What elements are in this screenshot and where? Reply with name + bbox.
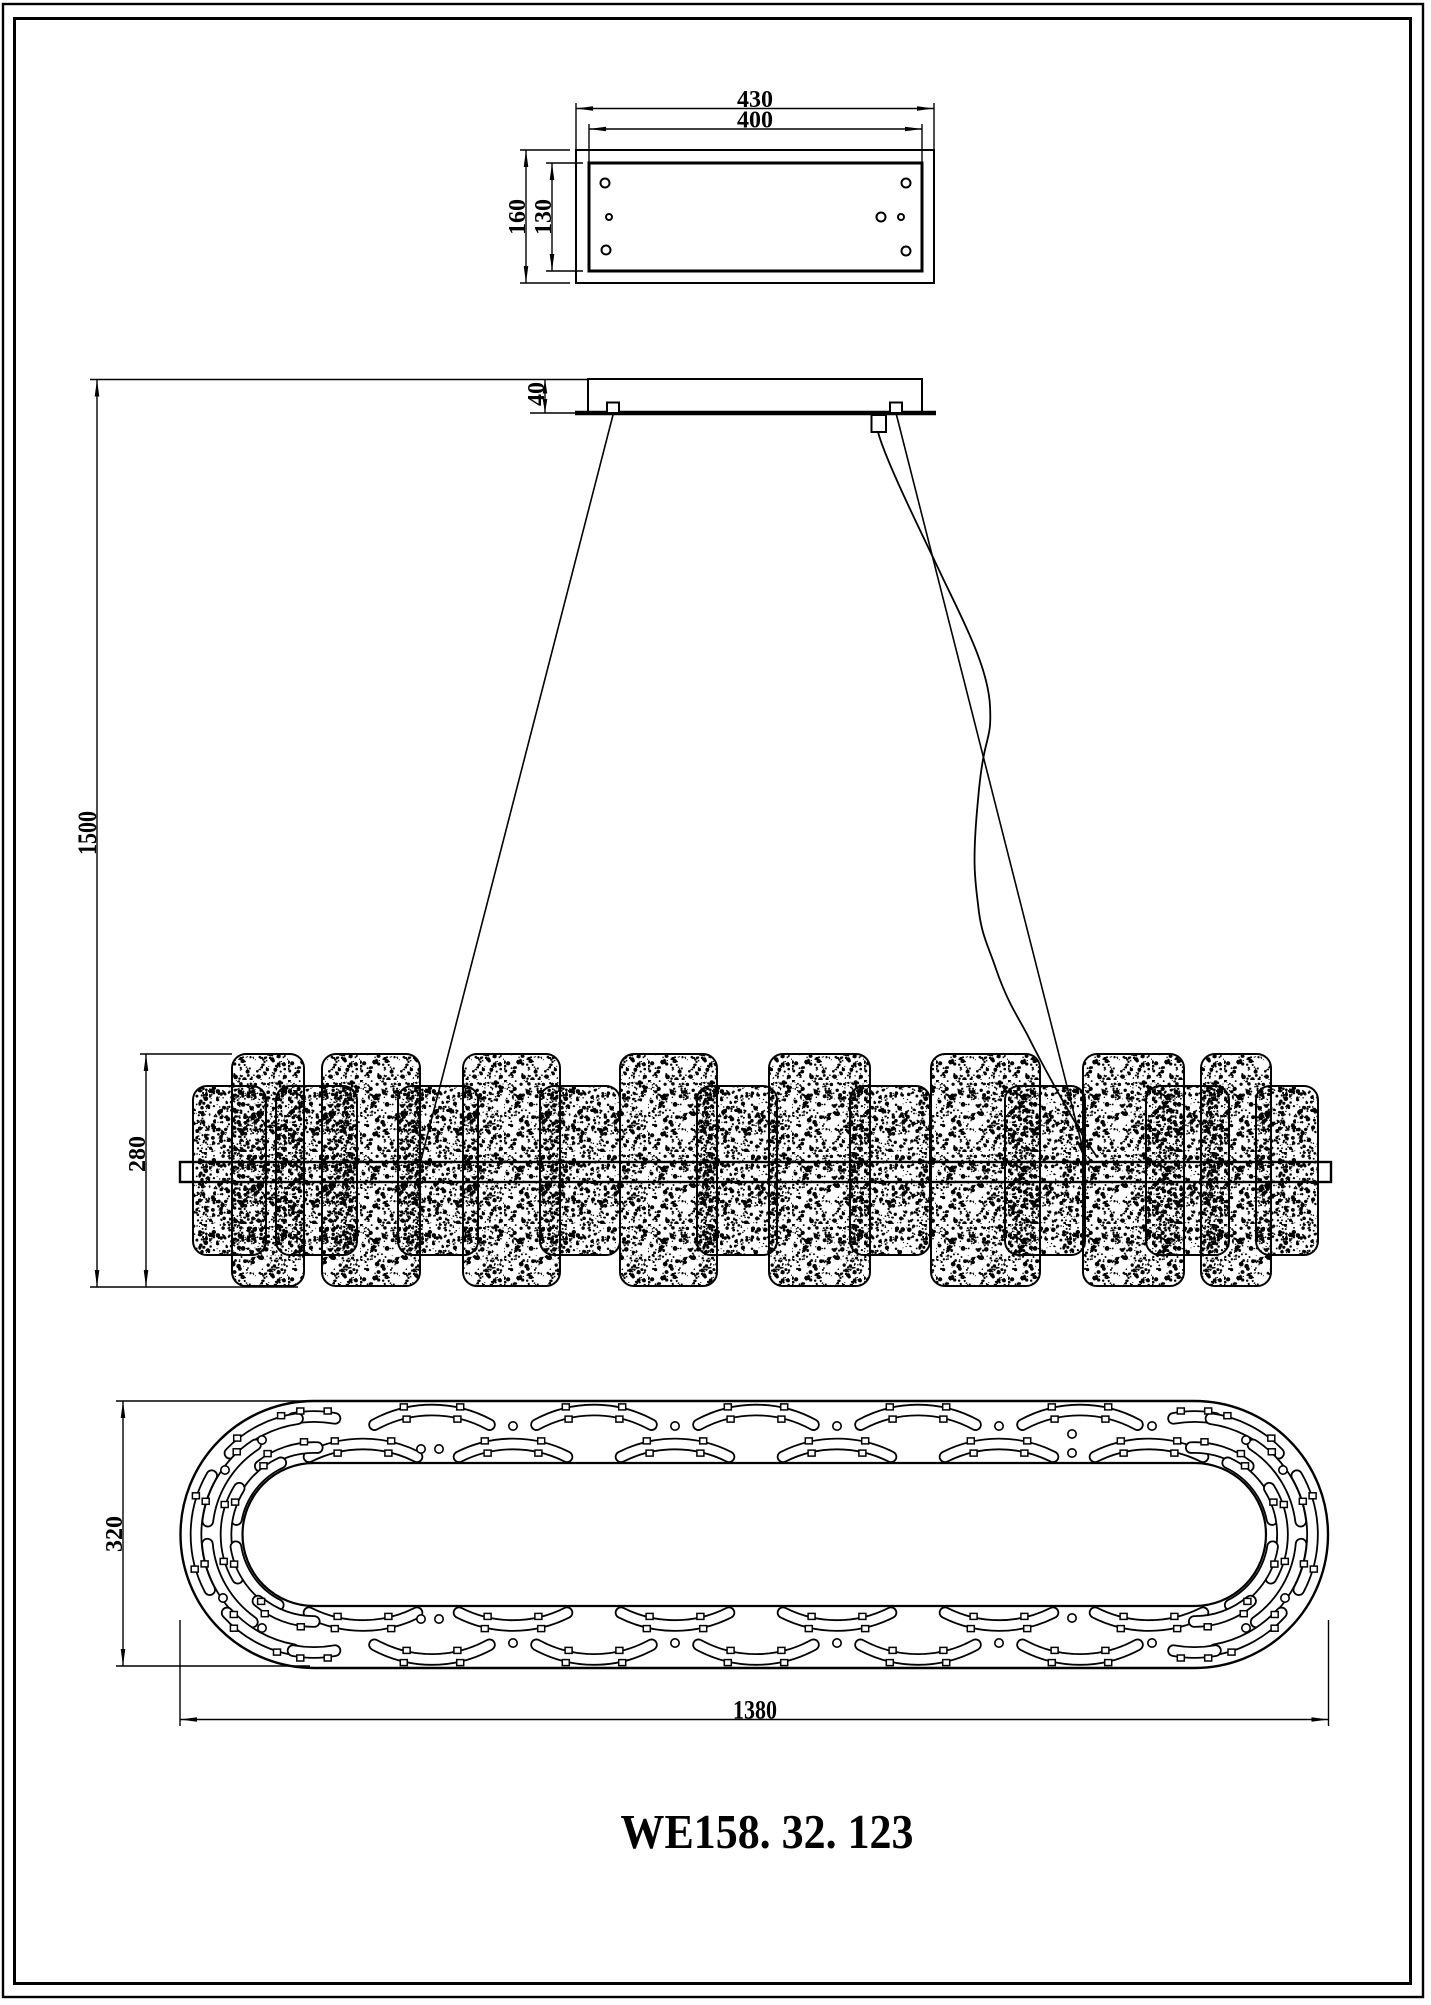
svg-text:1500: 1500: [73, 811, 102, 855]
svg-text:320: 320: [102, 1516, 128, 1552]
svg-text:160: 160: [505, 199, 531, 235]
svg-text:280: 280: [125, 1136, 151, 1172]
svg-text:WE158. 32. 123: WE158. 32. 123: [621, 1804, 914, 1859]
svg-text:400: 400: [737, 108, 773, 134]
svg-text:40: 40: [524, 382, 550, 406]
svg-text:130: 130: [531, 199, 557, 235]
svg-text:1380: 1380: [733, 1696, 777, 1725]
